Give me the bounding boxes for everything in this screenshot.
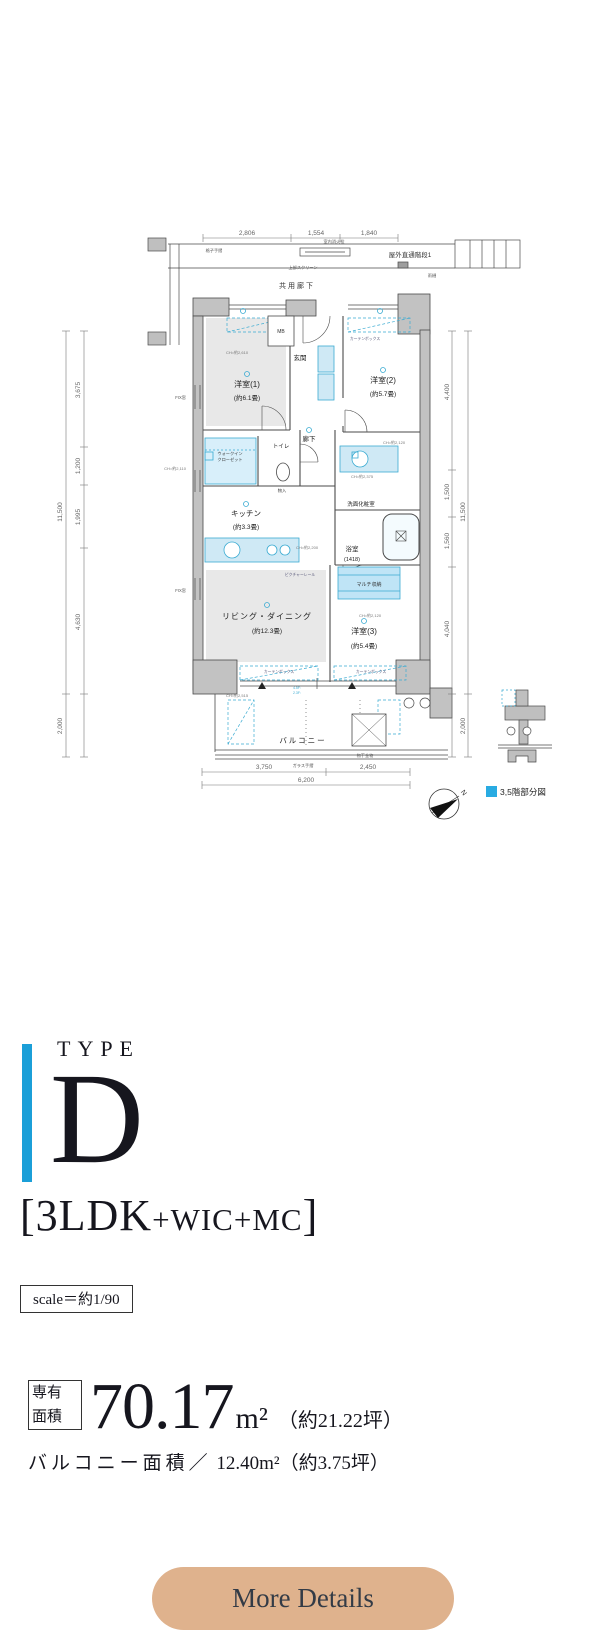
label-living-dining: リビング・ダイニング xyxy=(222,611,312,621)
label-ch-2: CH=約2,120 xyxy=(383,439,406,445)
dim-left-2: 1,200 xyxy=(75,457,82,474)
label-hydrant: 室内消火栓 xyxy=(324,238,346,245)
dim-right-total: 11,500 xyxy=(460,502,467,522)
dim-top-1: 2,806 xyxy=(239,230,256,237)
label-gutter: 雨樋 xyxy=(428,272,437,279)
area-tsubo: （約21.22坪） xyxy=(278,1410,403,1432)
label-bedroom2-size: (約5.7畳) xyxy=(370,389,396,398)
label-curtainbox-1: カーテンボックス xyxy=(350,336,380,341)
shoe-cabinet-1 xyxy=(318,346,334,372)
toilet-fixture xyxy=(277,463,290,481)
label-bedroom2: 洋室(2) xyxy=(370,375,396,385)
label-entrance: 玄関 xyxy=(294,353,307,362)
label-wic-1: ウォークイン xyxy=(217,450,242,457)
floorplan: 2,8061,5541,84011,5003,6751,2001,9954,63… xyxy=(0,0,606,830)
side-stair xyxy=(148,238,179,345)
label-ch-3: CH=約2,110 xyxy=(164,465,187,471)
label-lattice-rail: 格子手摺 xyxy=(206,247,223,254)
layout-line: [3LDK+WIC+MC] xyxy=(20,1190,318,1241)
label-washroom: 洗面化粧室 xyxy=(347,500,375,508)
shoe-cabinet-2 xyxy=(318,374,334,400)
floorplan-svg: 2,8061,5541,84011,5003,6751,2001,9954,63… xyxy=(0,0,606,830)
legend-square xyxy=(486,786,497,797)
area-row: 専有 面積 70.17 m² （約21.22坪） xyxy=(28,1380,403,1434)
label-wic-2: クローゼット xyxy=(217,456,242,463)
dim-top-2: 1,554 xyxy=(308,230,325,237)
label-kitchen-size: (約3.3畳) xyxy=(233,522,259,531)
label-bedroom3-size: (約5.4畳) xyxy=(351,641,377,650)
label-balcony: バルコニー xyxy=(279,736,326,745)
type-letter: D xyxy=(50,1054,144,1184)
layout-main: 3LDK xyxy=(36,1191,152,1240)
label-bath-size: (1418) xyxy=(344,557,360,563)
dim-left-total: 11,500 xyxy=(57,502,64,522)
corridor xyxy=(168,240,520,268)
label-toilet: トイレ xyxy=(273,444,290,450)
label-glass-rail: ガラス手摺 xyxy=(293,762,314,769)
dim-left-4: 4,630 xyxy=(75,613,82,630)
label-mb: MB xyxy=(277,329,285,335)
label-bedroom1: 洋室(1) xyxy=(234,379,260,389)
wall-detail xyxy=(498,690,552,762)
label-common-corridor: 共用廊下 xyxy=(279,281,315,290)
dim-top-3: 1,840 xyxy=(361,230,378,237)
dim-right-5: 2,000 xyxy=(460,717,467,734)
label-fix-window-2: FIX窓 xyxy=(175,587,186,593)
label-ch-6: CH=約2,120 xyxy=(359,612,382,618)
dim-right-1: 4,400 xyxy=(444,383,451,400)
dim-bottom-2: 2,450 xyxy=(360,764,377,771)
label-bath: 浴室 xyxy=(346,544,360,553)
label-curtainbox-3: カーテンボックス xyxy=(356,669,386,674)
label-hallway: 廊下 xyxy=(303,434,317,443)
legend-label: 3,5階部分図 xyxy=(500,787,546,797)
label-kitchen: キッチン xyxy=(231,509,261,518)
balcony-label: バルコニー面積／ xyxy=(28,1453,212,1474)
dim-left-3: 1,995 xyxy=(75,508,82,525)
label-curtainbox-2: カーテンボックス xyxy=(264,669,294,674)
label-bedroom3: 洋室(3) xyxy=(351,626,377,636)
label-ch-7: CH=約2,515 xyxy=(226,692,249,698)
area-unit: m² xyxy=(236,1404,268,1434)
label-laundry-pole: 物干金物 xyxy=(357,752,374,759)
label-picture-rail: ピクチャーレール xyxy=(285,572,316,577)
label-ch-1: CH=約2,610 xyxy=(226,349,249,355)
dim-left-1: 3,675 xyxy=(75,381,82,398)
dim-right-2: 1,500 xyxy=(444,483,451,500)
north-arrow-icon xyxy=(429,789,459,819)
balcony-area-line: バルコニー面積／ 12.40m²（約3.75坪） xyxy=(28,1448,389,1475)
label-living-size: (約12.3畳) xyxy=(252,626,282,635)
type-accent-bar xyxy=(22,1044,32,1182)
label-multi-closet: マルチ収納 xyxy=(356,581,381,588)
area-label-line1: 専有 xyxy=(32,1383,78,1403)
more-details-button[interactable]: More Details xyxy=(152,1567,454,1630)
dim-bottom-total: 6,200 xyxy=(298,777,315,784)
layout-sub: +WIC+MC xyxy=(152,1202,302,1237)
room-fills xyxy=(206,318,326,662)
bracket-close: ] xyxy=(303,1191,319,1240)
label-floor-note-1: 4.5F: xyxy=(293,686,301,690)
label-fix-window-1: FIX窓 xyxy=(175,394,186,400)
bracket-open: [ xyxy=(20,1191,36,1240)
dim-bottom-1: 3,750 xyxy=(256,764,273,771)
north-label: N xyxy=(459,789,468,797)
area-label-line2: 面積 xyxy=(32,1407,78,1427)
label-upper-screen: 上部スクリーン xyxy=(288,264,317,271)
label-floor-note-2: 2.3F: xyxy=(293,691,301,695)
balcony-tsubo: （約3.75坪） xyxy=(280,1453,389,1474)
label-ch-5: CH=約2,200 xyxy=(296,544,319,550)
label-ch-4: CH=約2,375 xyxy=(351,473,374,479)
bathtub xyxy=(383,514,419,560)
label-outdoor-stairs: 屋外直通階段1 xyxy=(389,250,432,259)
vanity xyxy=(340,446,398,472)
dim-right-3: 1,560 xyxy=(444,532,451,549)
area-value: 70.17 xyxy=(90,1380,234,1434)
label-bedroom1-size: (約6.1畳) xyxy=(234,393,260,402)
scale-note: scale＝約1/90 xyxy=(20,1285,133,1313)
label-storage: 物入 xyxy=(278,487,287,494)
dim-left-5: 2,000 xyxy=(57,717,64,734)
dim-right-4: 4,040 xyxy=(444,620,451,637)
area-label-box: 専有 面積 xyxy=(28,1380,82,1430)
balcony-value: 12.40m² xyxy=(212,1453,280,1474)
